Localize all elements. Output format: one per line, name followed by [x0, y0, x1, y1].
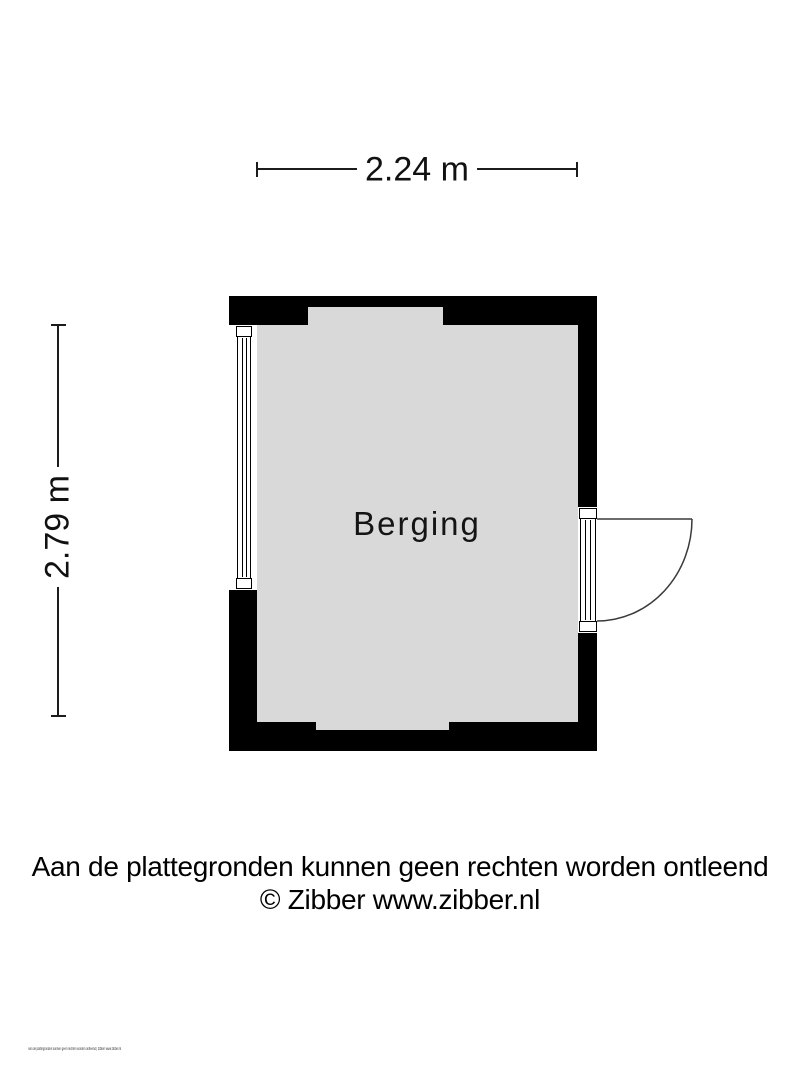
room-label: Berging	[353, 505, 481, 543]
dimension-width-label: 2.24 m	[357, 151, 477, 190]
floorplan-page: 2.24 m 2.79 m	[0, 0, 800, 1067]
door-swing-arc	[597, 519, 692, 621]
dimension-height-tick-bottom	[51, 715, 66, 717]
floor-notch-top	[308, 307, 443, 327]
window-glass-line	[242, 338, 243, 577]
dimension-width-line-left	[257, 168, 357, 170]
window-symbol	[237, 326, 251, 589]
dimension-width-tick-left	[256, 162, 258, 177]
window-cap-bottom	[236, 578, 252, 589]
window-cap-top	[236, 326, 252, 337]
footer-micro-text: Aan de plattegronden kunnen geen rechten…	[28, 1047, 121, 1051]
disclaimer-text: Aan de plattegronden kunnen geen rechten…	[0, 851, 800, 883]
floor-notch-bottom	[316, 720, 449, 730]
credit-text: © Zibber www.zibber.nl	[0, 884, 800, 916]
window-glass-line	[246, 338, 247, 577]
dimension-height-label: 2.79 m	[39, 467, 78, 587]
dimension-height-tick-top	[51, 324, 66, 326]
dimension-height-line-top	[57, 325, 59, 477]
door-swing	[560, 490, 710, 650]
dimension-width-tick-right	[576, 162, 578, 177]
dimension-width-line-right	[477, 168, 577, 170]
dimension-height-line-bottom	[57, 582, 59, 717]
